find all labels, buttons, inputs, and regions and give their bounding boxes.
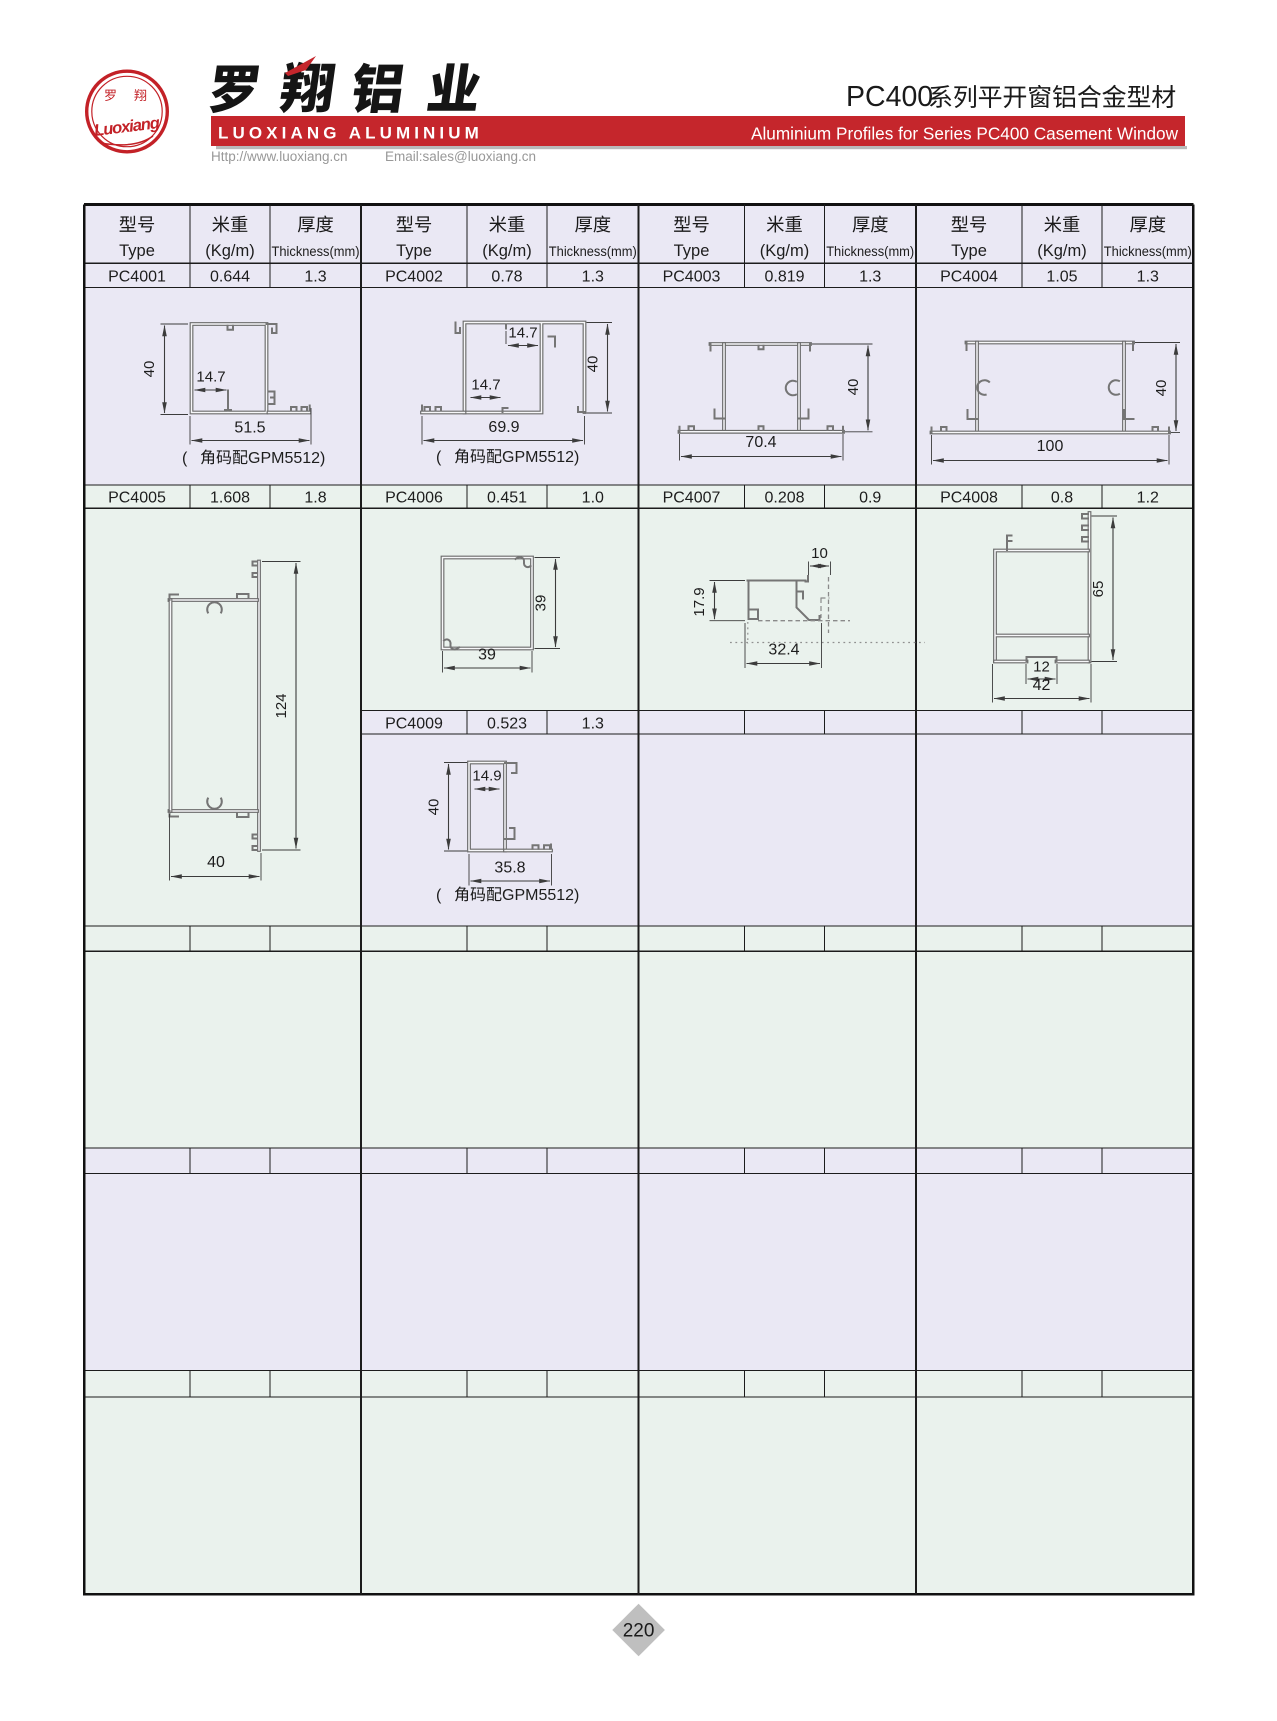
svg-text:PC4007: PC4007 (663, 490, 721, 507)
svg-text:GPM5512: GPM5512 (502, 449, 574, 466)
svg-text:0.819: 0.819 (764, 269, 804, 286)
svg-text:PC4005: PC4005 (108, 490, 166, 507)
svg-text:1.3: 1.3 (582, 269, 604, 286)
svg-text:LUOXIANG ALUMINIUM: LUOXIANG ALUMINIUM (218, 124, 483, 143)
svg-text:0.9: 0.9 (859, 490, 881, 507)
svg-text:Thickness(mm): Thickness(mm) (1104, 244, 1192, 260)
svg-text:(: ( (182, 450, 188, 467)
svg-text:35.8: 35.8 (494, 860, 525, 877)
svg-text:1.3: 1.3 (304, 269, 326, 286)
svg-text:PC4009: PC4009 (385, 716, 443, 733)
svg-text:0.523: 0.523 (487, 716, 527, 733)
svg-text:100: 100 (1037, 438, 1064, 455)
svg-text:(Kg/m): (Kg/m) (482, 242, 532, 260)
svg-text:0.208: 0.208 (764, 490, 804, 507)
svg-text:(Kg/m): (Kg/m) (205, 242, 255, 260)
svg-text:1.3: 1.3 (1137, 269, 1159, 286)
svg-text:PC4006: PC4006 (385, 490, 443, 507)
svg-text:PC4002: PC4002 (385, 269, 443, 286)
svg-text:1.608: 1.608 (210, 490, 250, 507)
svg-text:0.644: 0.644 (210, 269, 250, 286)
svg-text:): ) (574, 449, 579, 466)
svg-text:Email:sales@luoxiang.cn: Email:sales@luoxiang.cn (385, 149, 536, 164)
svg-text:Http://www.luoxiang.cn: Http://www.luoxiang.cn (211, 149, 348, 164)
svg-text:GPM5512: GPM5512 (502, 887, 574, 904)
svg-text:1.8: 1.8 (304, 490, 326, 507)
svg-text:39: 39 (478, 647, 496, 664)
svg-text:65: 65 (1090, 581, 1107, 598)
svg-text:1.2: 1.2 (1137, 490, 1159, 507)
svg-text:12: 12 (1033, 659, 1050, 676)
svg-text:40: 40 (141, 361, 158, 378)
svg-text:(: ( (436, 449, 442, 466)
svg-text:GPM5512: GPM5512 (248, 450, 320, 467)
svg-text:10: 10 (811, 545, 828, 562)
svg-text:Type: Type (951, 242, 987, 260)
svg-text:(Kg/m): (Kg/m) (1037, 242, 1087, 260)
svg-text:0.451: 0.451 (487, 490, 527, 507)
svg-text:40: 40 (1153, 380, 1170, 397)
svg-text:Thickness(mm): Thickness(mm) (549, 244, 637, 260)
svg-text:1.3: 1.3 (582, 716, 604, 733)
svg-text:14.9: 14.9 (472, 768, 501, 785)
svg-text:0.8: 0.8 (1051, 490, 1073, 507)
svg-text:51.5: 51.5 (234, 420, 265, 437)
svg-text:Thickness(mm): Thickness(mm) (272, 244, 360, 260)
svg-text:PC4001: PC4001 (108, 269, 166, 286)
svg-text:14.7: 14.7 (196, 369, 225, 386)
svg-text:PC4003: PC4003 (663, 269, 721, 286)
svg-text:39: 39 (533, 595, 550, 612)
svg-text:(: ( (436, 887, 442, 904)
svg-text:17.9: 17.9 (691, 587, 708, 616)
svg-text:(Kg/m): (Kg/m) (760, 242, 810, 260)
svg-text:PC400: PC400 (846, 81, 933, 113)
svg-text:Thickness(mm): Thickness(mm) (826, 244, 914, 260)
svg-text:PC4004: PC4004 (940, 269, 998, 286)
svg-text:): ) (574, 887, 579, 904)
svg-text:0.78: 0.78 (491, 269, 522, 286)
svg-text:Luoxiang: Luoxiang (93, 114, 161, 140)
svg-text:PC4008: PC4008 (940, 490, 998, 507)
svg-text:14.7: 14.7 (508, 325, 537, 342)
svg-text:1.3: 1.3 (859, 269, 881, 286)
svg-text:Aluminium Profiles for Series: Aluminium Profiles for Series PC400 Case… (751, 124, 1179, 144)
svg-text:40: 40 (207, 854, 225, 871)
svg-text:14.7: 14.7 (471, 377, 500, 394)
svg-text:32.4: 32.4 (768, 642, 799, 659)
svg-text:Type: Type (119, 242, 155, 260)
svg-text:70.4: 70.4 (745, 434, 776, 451)
svg-text:220: 220 (623, 1621, 655, 1642)
svg-text:1.05: 1.05 (1046, 269, 1077, 286)
svg-text:40: 40 (845, 379, 862, 396)
svg-text:): ) (320, 450, 325, 467)
svg-text:124: 124 (273, 693, 290, 718)
svg-text:40: 40 (426, 799, 443, 816)
svg-text:69.9: 69.9 (488, 419, 519, 436)
svg-text:Type: Type (674, 242, 710, 260)
svg-text:Type: Type (396, 242, 432, 260)
svg-text:1.0: 1.0 (582, 490, 604, 507)
svg-text:40: 40 (585, 356, 602, 373)
svg-text:42: 42 (1033, 677, 1051, 694)
